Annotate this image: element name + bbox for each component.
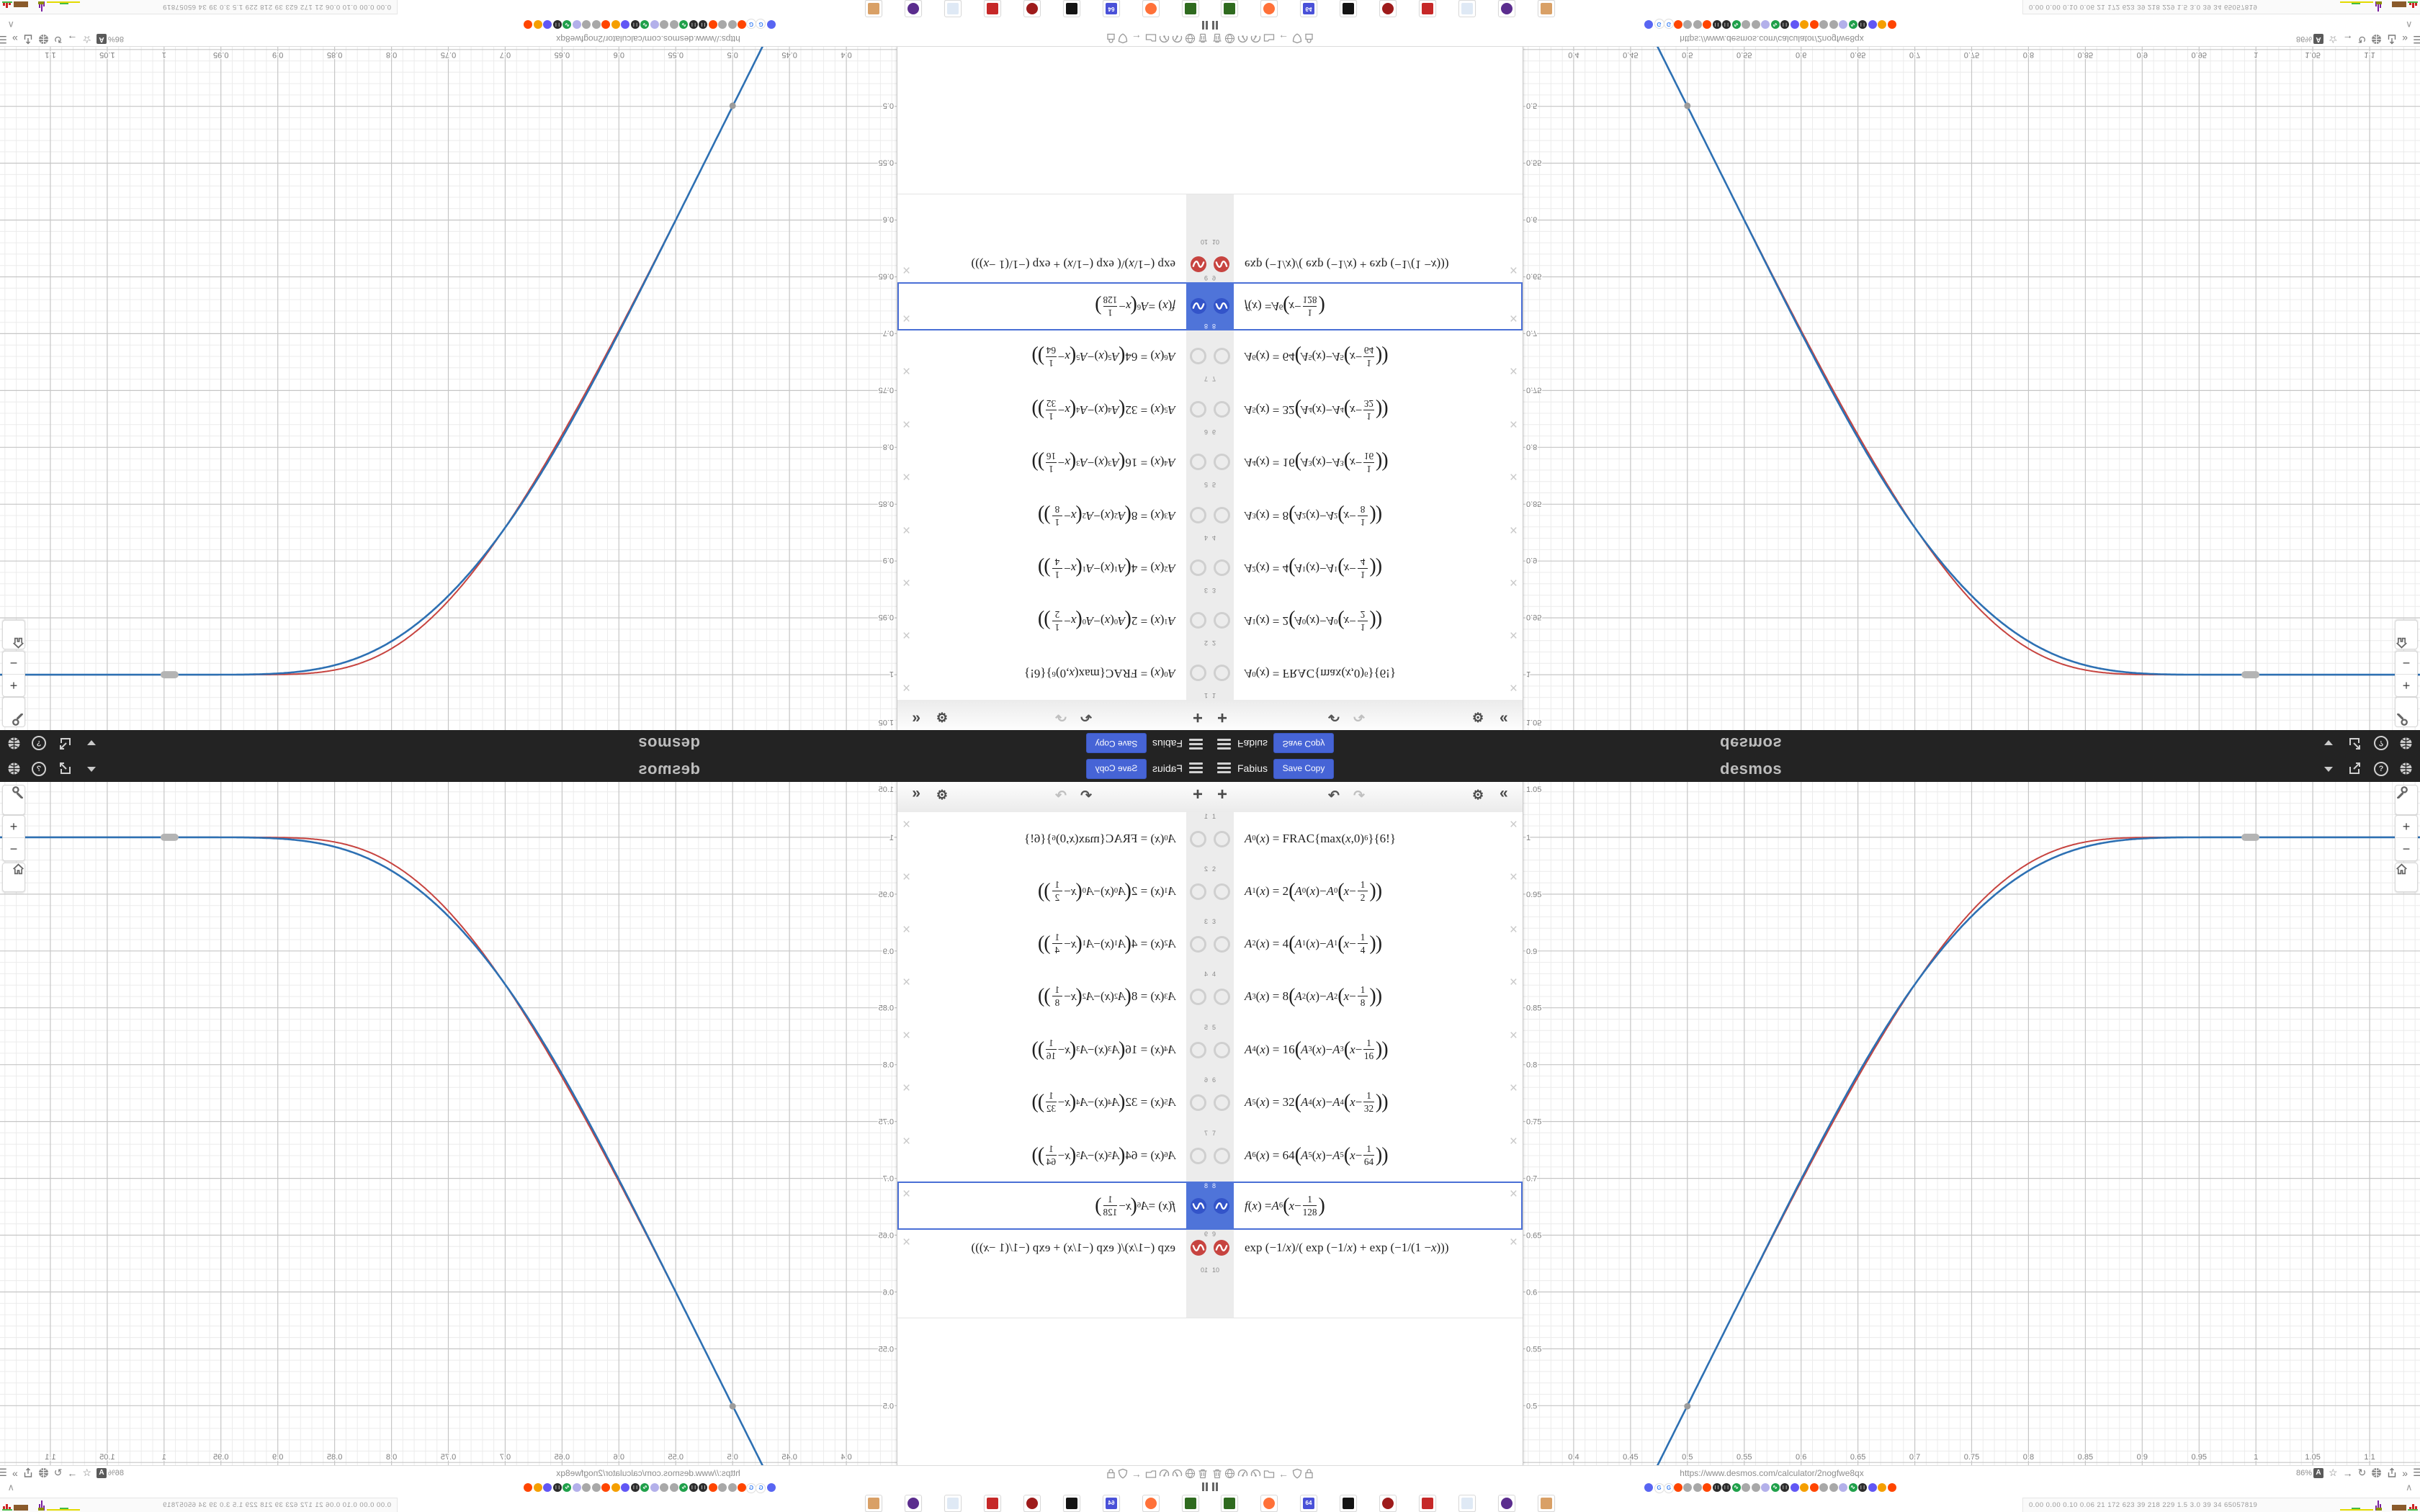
expression-row-10[interactable]: 10: [1210, 1266, 1523, 1318]
fish-favicon[interactable]: [728, 20, 737, 29]
delete-row-icon[interactable]: ×: [902, 1081, 910, 1095]
redgear2-app-icon[interactable]: [984, 1495, 1001, 1512]
expression-row-10[interactable]: 10: [1210, 194, 1523, 246]
globe-icon[interactable]: [1224, 1468, 1235, 1479]
expression-row-9[interactable]: 9exp (−1/x)/( exp (−1/x) + exp (−1/(1 − …: [897, 246, 1210, 282]
save-copy-button[interactable]: Save Copy: [1273, 759, 1334, 779]
trash-favicon[interactable]: ❘❘: [631, 20, 640, 29]
status-url[interactable]: https://www.desmos.com/calculator/2nogfw…: [1556, 1468, 1988, 1478]
expression-formula[interactable]: [1234, 1266, 1507, 1318]
graph-canvas[interactable]: 0.40.450.50.550.60.650.70.750.80.850.90.…: [0, 782, 897, 1465]
discord-favicon[interactable]: [1644, 1483, 1653, 1492]
forward-icon[interactable]: →: [67, 1467, 77, 1479]
menu-icon[interactable]: ☰: [2413, 1467, 2420, 1479]
hidden-toggle-icon[interactable]: [1214, 831, 1230, 847]
delete-row-icon[interactable]: ×: [1510, 1081, 1518, 1095]
globe-icon[interactable]: [7, 737, 21, 750]
translate-icon[interactable]: A: [2313, 1468, 2323, 1478]
expression-row-1[interactable]: 1A0(x) = FRAC{max(x,0)6}{6!}×: [1210, 647, 1523, 700]
fish-favicon[interactable]: [583, 20, 591, 29]
chevron-up-icon[interactable]: ∧: [7, 19, 14, 30]
graph-paper[interactable]: + − 0.40.450.50.550.60.650.70.750.80.850…: [0, 47, 897, 730]
redgear2-app-icon[interactable]: [1419, 1495, 1436, 1512]
reddit-favicon[interactable]: [1810, 20, 1819, 29]
delete-row-icon[interactable]: ×: [902, 1029, 910, 1043]
redgear2-app-icon[interactable]: [1419, 0, 1436, 17]
hidden-toggle-icon[interactable]: [1190, 613, 1206, 629]
gauge-icon[interactable]: [1237, 33, 1248, 44]
gauge-icon[interactable]: [1250, 1468, 1261, 1479]
home-viewport-button[interactable]: [2395, 620, 2418, 649]
expression-row-3[interactable]: 3A2(x) = 4(A1(x)−A1(x − 14))×: [1210, 541, 1523, 595]
reddit-favicon[interactable]: [1674, 20, 1682, 29]
curve-visible-icon[interactable]: [1191, 1198, 1206, 1214]
expression-formula[interactable]: exp (−1/x)/( exp (−1/x) + exp (−1/(1 − x…: [913, 246, 1186, 282]
palette-app-icon[interactable]: [865, 1495, 882, 1512]
delete-row-icon[interactable]: ×: [902, 680, 910, 694]
expression-formula[interactable]: A0(x) = FRAC{max(x,0)6}{6!}: [1234, 812, 1507, 865]
wolf-app-icon[interactable]: [1340, 0, 1357, 17]
terminal-app-icon[interactable]: [1182, 1495, 1199, 1512]
trash-favicon[interactable]: ❘❘: [689, 1483, 698, 1492]
redgear-app-icon[interactable]: [1023, 1495, 1041, 1512]
expression-row-5[interactable]: 5A4(x) = 16(A3(x)−A3(x − 116))×: [1210, 436, 1523, 489]
delete-row-icon[interactable]: ×: [902, 1135, 910, 1148]
sphere-favicon[interactable]: [573, 1483, 581, 1492]
trash-icon[interactable]: [1198, 1468, 1208, 1479]
expression-formula[interactable]: A6(x) = 64(A5(x)−A5(x − 164)): [913, 1129, 1186, 1182]
expression-formula[interactable]: exp (−1/x)/( exp (−1/x) + exp (−1/(1 − x…: [913, 1230, 1186, 1266]
trash-favicon[interactable]: ❘❘: [1722, 1483, 1731, 1492]
desmos-favicon[interactable]: ∿: [1849, 1483, 1857, 1492]
google-favicon[interactable]: G: [746, 19, 756, 29]
hidden-toggle-icon[interactable]: [1214, 883, 1230, 900]
expression-formula[interactable]: [913, 194, 1186, 246]
redgear-app-icon[interactable]: [1379, 0, 1397, 17]
chat-favicon[interactable]: [1791, 20, 1799, 29]
trash-favicon[interactable]: ❘❘: [553, 1483, 562, 1492]
delete-row-icon[interactable]: ×: [902, 575, 910, 589]
graph-settings-wrench-button[interactable]: [2395, 785, 2418, 815]
sphere-favicon[interactable]: [573, 20, 581, 29]
bookmark-star-icon[interactable]: ☆: [2329, 33, 2338, 45]
chevron-up-icon[interactable]: ∧: [2406, 19, 2413, 30]
google-favicon[interactable]: G: [746, 1483, 756, 1493]
curve-visible-icon[interactable]: [1191, 256, 1206, 272]
lock-icon[interactable]: [1304, 1468, 1314, 1479]
hidden-toggle-icon[interactable]: [1214, 401, 1230, 418]
reddit-favicon[interactable]: [1703, 1483, 1711, 1492]
firefox-app-icon[interactable]: [1142, 1495, 1160, 1512]
expression-row-3[interactable]: 3A2(x) = 4(A1(x)−A1(x − 14))×: [897, 917, 1210, 971]
trash-favicon[interactable]: ❘❘: [1713, 1483, 1721, 1492]
expression-formula[interactable]: A1(x) = 2(A0(x)−A0(x − 12)): [913, 595, 1186, 647]
sun-favicon[interactable]: [1800, 20, 1809, 29]
owl-app-icon[interactable]: [905, 1495, 922, 1512]
help-icon[interactable]: ?: [2374, 736, 2388, 750]
menu-icon[interactable]: ☰: [2413, 33, 2420, 45]
expression-row-9[interactable]: 9exp (−1/x)/( exp (−1/x) + exp (−1/(1 − …: [897, 1230, 1210, 1266]
forward-icon[interactable]: →: [2343, 34, 2353, 45]
save-copy-button[interactable]: Save Copy: [1273, 733, 1334, 753]
reload-icon[interactable]: ↻: [54, 33, 63, 45]
reddit-favicon[interactable]: [602, 1483, 611, 1492]
trash-favicon[interactable]: ❘❘: [689, 20, 698, 29]
delete-row-icon[interactable]: ×: [902, 263, 910, 276]
menu-hamburger-icon[interactable]: [1217, 738, 1231, 750]
delete-row-icon[interactable]: ×: [902, 311, 910, 325]
help-icon[interactable]: ?: [2374, 762, 2388, 776]
expression-formula[interactable]: f (x) = A6(x − 1128): [1234, 1182, 1507, 1230]
fish-favicon[interactable]: [1742, 1483, 1750, 1492]
zoom-level[interactable]: 86%: [108, 1469, 124, 1477]
reddit-favicon[interactable]: [602, 20, 611, 29]
graph-settings-wrench-button[interactable]: [2395, 697, 2418, 727]
gauge-icon[interactable]: [1159, 33, 1170, 44]
owl-app-icon[interactable]: [905, 0, 922, 17]
expression-row-4[interactable]: 4A3(x) = 8(A2(x)−A2(x − 18))×: [1210, 970, 1523, 1024]
caret-down-icon[interactable]: [87, 767, 96, 772]
expression-row-10[interactable]: 10: [897, 194, 1210, 246]
trash-favicon[interactable]: ❘❘: [699, 20, 708, 29]
trash-favicon[interactable]: ❘❘: [1780, 20, 1789, 29]
globe-icon[interactable]: [1185, 33, 1196, 44]
reddit-favicon[interactable]: [709, 20, 717, 29]
save-copy-button[interactable]: Save Copy: [1086, 759, 1147, 779]
forward-icon[interactable]: →: [67, 34, 77, 45]
hidden-toggle-icon[interactable]: [1214, 665, 1230, 682]
discord-favicon[interactable]: [767, 1483, 776, 1492]
delete-row-icon[interactable]: ×: [1510, 680, 1518, 694]
translate-icon[interactable]: A: [2313, 35, 2323, 45]
expression-row-7[interactable]: 7A6(x) = 64(A5(x)−A5(x − 164))×: [897, 1129, 1210, 1182]
hidden-toggle-icon[interactable]: [1214, 507, 1230, 523]
graph-canvas[interactable]: 0.40.450.50.550.60.650.70.750.80.850.90.…: [1523, 782, 2420, 1465]
hidden-toggle-icon[interactable]: [1214, 936, 1230, 953]
hidden-toggle-icon[interactable]: [1190, 348, 1206, 365]
fish-favicon[interactable]: [592, 20, 601, 29]
share-icon[interactable]: [2348, 762, 2362, 775]
google-favicon[interactable]: G: [1654, 1483, 1664, 1493]
expression-row-6[interactable]: 6A5(x) = 32(A4(x)−A4(x − 132))×: [1210, 382, 1523, 436]
gauge-icon[interactable]: [1172, 1468, 1183, 1479]
delete-row-icon[interactable]: ×: [902, 1187, 910, 1201]
delete-row-icon[interactable]: ×: [1510, 1135, 1518, 1148]
hidden-toggle-icon[interactable]: [1214, 560, 1230, 577]
expression-row-4[interactable]: 4A3(x) = 8(A2(x)−A2(x − 18))×: [897, 488, 1210, 542]
delete-row-icon[interactable]: ×: [1510, 364, 1518, 377]
menu-hamburger-icon[interactable]: [1189, 738, 1203, 750]
graph-paper[interactable]: + − 0.40.450.50.550.60.650.70.750.80.850…: [1523, 47, 2420, 730]
expression-formula[interactable]: A3(x) = 8(A2(x)−A2(x − 18)): [913, 489, 1186, 542]
sphere-favicon[interactable]: [1839, 1483, 1847, 1492]
reload-icon[interactable]: ↻: [54, 1467, 63, 1479]
google-favicon[interactable]: G: [1654, 19, 1664, 29]
expression-row-8[interactable]: 8f (x) = A6(x − 1128)×: [897, 1182, 1210, 1230]
terminal-app-icon[interactable]: [1221, 0, 1238, 17]
back-arrow-icon[interactable]: ←: [1277, 33, 1290, 45]
curve-visible-icon[interactable]: [1191, 1240, 1206, 1256]
expression-row-5[interactable]: 5A4(x) = 16(A3(x)−A3(x − 116))×: [897, 436, 1210, 489]
delete-row-icon[interactable]: ×: [1510, 263, 1518, 276]
zoom-out-button[interactable]: −: [2396, 652, 2417, 674]
share-icon[interactable]: [23, 34, 33, 45]
folder-icon[interactable]: [1263, 1469, 1275, 1479]
floppy64-app-icon[interactable]: 64: [1103, 1495, 1120, 1512]
caret-down-icon[interactable]: [2324, 767, 2333, 772]
share-icon[interactable]: [2387, 1467, 2397, 1478]
trash-favicon[interactable]: ❘❘: [553, 20, 562, 29]
share-icon[interactable]: [58, 737, 72, 750]
expression-row-8[interactable]: 8f (x) = A6(x − 1128)×: [1210, 282, 1523, 330]
notes-app-icon[interactable]: [944, 1495, 962, 1512]
folder-icon[interactable]: [1263, 34, 1275, 44]
curve-visible-icon[interactable]: [1214, 256, 1229, 272]
caret-down-icon[interactable]: [2324, 740, 2333, 745]
expression-row-2[interactable]: 2A1(x) = 2(A0(x)−A0(x − 12))×: [897, 865, 1210, 918]
desmos-favicon[interactable]: ∿: [563, 1483, 572, 1492]
globe-icon[interactable]: [7, 762, 21, 775]
expression-formula[interactable]: A5(x) = 32(A4(x)−A4(x − 132)): [1234, 1076, 1507, 1129]
delete-row-icon[interactable]: ×: [1510, 311, 1518, 325]
palette-app-icon[interactable]: [865, 0, 882, 17]
sun-favicon[interactable]: [1800, 1483, 1809, 1492]
overflow-chevrons-icon[interactable]: »: [2402, 1467, 2408, 1479]
expression-formula[interactable]: exp (−1/x)/( exp (−1/x) + exp (−1/(1 − x…: [1234, 246, 1507, 282]
overflow-chevrons-icon[interactable]: »: [2402, 34, 2408, 45]
chat-favicon[interactable]: [1868, 1483, 1877, 1492]
expression-row-1[interactable]: 1A0(x) = FRAC{max(x,0)6}{6!}×: [897, 647, 1210, 700]
zoom-out-button[interactable]: −: [2396, 838, 2417, 860]
expression-formula[interactable]: A6(x) = 64(A5(x)−A5(x − 164)): [913, 330, 1186, 383]
reddit-favicon[interactable]: [738, 1483, 747, 1492]
delete-row-icon[interactable]: ×: [1510, 976, 1518, 989]
sun-favicon[interactable]: [534, 20, 542, 29]
reddit-favicon[interactable]: [1888, 1483, 1896, 1492]
wolf-app-icon[interactable]: [1063, 1495, 1080, 1512]
reddit-favicon[interactable]: [1703, 20, 1711, 29]
gauge-icon[interactable]: [1250, 33, 1261, 44]
fish-favicon[interactable]: [1819, 1483, 1828, 1492]
fish-favicon[interactable]: [728, 1483, 737, 1492]
fish-favicon[interactable]: [719, 1483, 727, 1492]
lock-icon[interactable]: [1106, 33, 1116, 44]
redgear-app-icon[interactable]: [1379, 1495, 1397, 1512]
terminal-app-icon[interactable]: [1221, 1495, 1238, 1512]
globe-icon[interactable]: [1185, 1468, 1196, 1479]
redgear2-app-icon[interactable]: [984, 0, 1001, 17]
zoom-in-button[interactable]: +: [3, 674, 24, 696]
expression-formula[interactable]: A2(x) = 4(A1(x)−A1(x − 14)): [913, 542, 1186, 595]
expression-formula[interactable]: A2(x) = 4(A1(x)−A1(x − 14)): [1234, 917, 1507, 970]
discord-favicon[interactable]: [1644, 20, 1653, 29]
graph-paper[interactable]: + − 0.40.450.50.550.60.650.70.750.80.850…: [1523, 782, 2420, 1465]
home-viewport-button[interactable]: [2, 863, 25, 892]
trash-favicon[interactable]: ❘❘: [699, 1483, 708, 1492]
sphere-favicon[interactable]: [650, 20, 659, 29]
expression-row-6[interactable]: 6A5(x) = 32(A4(x)−A4(x − 132))×: [897, 382, 1210, 436]
delete-row-icon[interactable]: ×: [902, 523, 910, 536]
floppy64-app-icon[interactable]: 64: [1300, 1495, 1317, 1512]
curve-visible-icon[interactable]: [1214, 299, 1229, 315]
globe-icon[interactable]: [2399, 762, 2413, 775]
reddit-favicon[interactable]: [524, 1483, 533, 1492]
fish-favicon[interactable]: [1829, 20, 1838, 29]
notes-app-icon[interactable]: [1458, 0, 1476, 17]
expression-formula[interactable]: f (x) = A6(x − 1128): [913, 282, 1186, 330]
expression-row-5[interactable]: 5A4(x) = 16(A3(x)−A3(x − 116))×: [897, 1023, 1210, 1076]
hidden-toggle-icon[interactable]: [1190, 936, 1206, 953]
graph-settings-wrench-button[interactable]: [2, 785, 25, 815]
expression-formula[interactable]: f (x) = A6(x − 1128): [913, 1182, 1186, 1230]
globe-icon[interactable]: [2371, 34, 2382, 45]
hidden-toggle-icon[interactable]: [1190, 665, 1206, 682]
desmos-favicon[interactable]: ∿: [1849, 20, 1857, 29]
zoom-level[interactable]: 86%: [108, 35, 124, 43]
expression-formula[interactable]: A3(x) = 8(A2(x)−A2(x − 18)): [913, 970, 1186, 1023]
caret-down-icon[interactable]: [87, 740, 96, 745]
menu-icon[interactable]: ☰: [0, 33, 7, 45]
palette-app-icon[interactable]: [1538, 1495, 1555, 1512]
redgear-app-icon[interactable]: [1023, 0, 1041, 17]
gauge-icon[interactable]: [1159, 1468, 1170, 1479]
hidden-toggle-icon[interactable]: [1214, 1148, 1230, 1164]
zoom-in-button[interactable]: +: [2396, 816, 2417, 838]
floppy64-app-icon[interactable]: 64: [1300, 0, 1317, 17]
expression-row-6[interactable]: 6A5(x) = 32(A4(x)−A4(x − 132))×: [1210, 1076, 1523, 1130]
chat-favicon[interactable]: [544, 1483, 552, 1492]
hidden-toggle-icon[interactable]: [1190, 401, 1206, 418]
delete-row-icon[interactable]: ×: [1510, 469, 1518, 483]
chat-favicon[interactable]: [1868, 20, 1877, 29]
google-favicon[interactable]: G: [1664, 19, 1674, 29]
expression-row-8[interactable]: 8f (x) = A6(x − 1128)×: [1210, 1182, 1523, 1230]
hidden-toggle-icon[interactable]: [1190, 454, 1206, 471]
menu-icon[interactable]: ☰: [0, 1467, 7, 1479]
delete-row-icon[interactable]: ×: [902, 818, 910, 832]
fish-favicon[interactable]: [1829, 1483, 1838, 1492]
back-arrow-icon[interactable]: ←: [1130, 33, 1143, 45]
expression-row-2[interactable]: 2A1(x) = 2(A0(x)−A0(x − 12))×: [897, 594, 1210, 647]
overflow-chevrons-icon[interactable]: »: [12, 1467, 18, 1479]
shield-icon[interactable]: [1118, 33, 1128, 44]
zoom-level[interactable]: 86%: [2296, 35, 2312, 43]
gauge-icon[interactable]: [1172, 33, 1183, 44]
delete-row-icon[interactable]: ×: [902, 364, 910, 377]
chevron-up-icon[interactable]: ∧: [2406, 1482, 2413, 1493]
fish-favicon[interactable]: [719, 20, 727, 29]
shield-icon[interactable]: [1118, 1468, 1128, 1479]
google-favicon[interactable]: G: [756, 1483, 766, 1493]
sun-favicon[interactable]: [611, 20, 620, 29]
fish-favicon[interactable]: [1693, 20, 1702, 29]
expression-formula[interactable]: A4(x) = 16(A3(x)−A3(x − 116)): [1234, 1023, 1507, 1076]
expression-formula[interactable]: exp (−1/x)/( exp (−1/x) + exp (−1/(1 − x…: [1234, 1230, 1507, 1266]
status-url[interactable]: https://www.desmos.com/calculator/2nogfw…: [432, 34, 864, 44]
expression-formula[interactable]: A5(x) = 32(A4(x)−A4(x − 132)): [913, 383, 1186, 436]
hidden-toggle-icon[interactable]: [1214, 613, 1230, 629]
hidden-toggle-icon[interactable]: [1214, 989, 1230, 1005]
notes-app-icon[interactable]: [944, 0, 962, 17]
fish-favicon[interactable]: [660, 1483, 669, 1492]
firefox-app-icon[interactable]: [1260, 1495, 1278, 1512]
expression-formula[interactable]: A1(x) = 2(A0(x)−A0(x − 12)): [1234, 865, 1507, 917]
terminal-app-icon[interactable]: [1182, 0, 1199, 17]
trash-favicon[interactable]: ❘❘: [1713, 20, 1721, 29]
share-icon[interactable]: [23, 1467, 33, 1478]
bookmark-star-icon[interactable]: ☆: [2329, 1467, 2338, 1479]
back-arrow-icon[interactable]: ←: [1277, 1468, 1290, 1480]
chat-favicon[interactable]: [622, 20, 630, 29]
expression-row-7[interactable]: 7A6(x) = 64(A5(x)−A5(x − 164))×: [1210, 330, 1523, 383]
hidden-toggle-icon[interactable]: [1190, 883, 1206, 900]
owl-app-icon[interactable]: [1498, 1495, 1515, 1512]
graph-paper[interactable]: + − 0.40.450.50.550.60.650.70.750.80.850…: [0, 782, 897, 1465]
hidden-toggle-icon[interactable]: [1214, 454, 1230, 471]
menu-hamburger-icon[interactable]: [1189, 762, 1203, 774]
save-copy-button[interactable]: Save Copy: [1086, 733, 1147, 753]
hidden-toggle-icon[interactable]: [1190, 1094, 1206, 1111]
trash-favicon[interactable]: ❘❘: [1858, 1483, 1867, 1492]
expression-row-1[interactable]: 1A0(x) = FRAC{max(x,0)6}{6!}×: [1210, 812, 1523, 865]
expression-row-2[interactable]: 2A1(x) = 2(A0(x)−A0(x − 12))×: [1210, 594, 1523, 647]
desmos-favicon[interactable]: ∿: [1732, 20, 1741, 29]
home-viewport-button[interactable]: [2395, 863, 2418, 892]
wolf-app-icon[interactable]: [1340, 1495, 1357, 1512]
delete-row-icon[interactable]: ×: [1510, 417, 1518, 431]
owl-app-icon[interactable]: [1498, 0, 1515, 17]
expression-formula[interactable]: f (x) = A6(x − 1128): [1234, 282, 1507, 330]
trash-icon[interactable]: [1198, 33, 1208, 44]
share-icon[interactable]: [2348, 737, 2362, 750]
wolf-app-icon[interactable]: [1063, 0, 1080, 17]
delete-row-icon[interactable]: ×: [1510, 1236, 1518, 1249]
reddit-favicon[interactable]: [1888, 20, 1896, 29]
help-icon[interactable]: ?: [32, 736, 46, 750]
expression-formula[interactable]: A3(x) = 8(A2(x)−A2(x − 18)): [1234, 489, 1507, 542]
expression-row-10[interactable]: 10: [897, 1266, 1210, 1318]
chat-favicon[interactable]: [1791, 1483, 1799, 1492]
expression-formula[interactable]: [913, 1266, 1186, 1318]
sphere-favicon[interactable]: [1839, 20, 1847, 29]
lock-icon[interactable]: [1106, 1468, 1116, 1479]
expression-formula[interactable]: A2(x) = 4(A1(x)−A1(x − 14)): [1234, 542, 1507, 595]
sun-favicon[interactable]: [1878, 1483, 1886, 1492]
expression-formula[interactable]: A3(x) = 8(A2(x)−A2(x − 18)): [1234, 970, 1507, 1023]
chat-favicon[interactable]: [622, 1483, 630, 1492]
trash-favicon[interactable]: ❘❘: [1858, 20, 1867, 29]
expression-formula[interactable]: A4(x) = 16(A3(x)−A3(x − 116)): [913, 436, 1186, 489]
translate-icon[interactable]: A: [97, 1468, 107, 1478]
fish-favicon[interactable]: [660, 20, 669, 29]
reddit-favicon[interactable]: [738, 20, 747, 29]
delete-row-icon[interactable]: ×: [1510, 1187, 1518, 1201]
back-arrow-icon[interactable]: ←: [1130, 1468, 1143, 1480]
desmos-favicon[interactable]: ∿: [641, 1483, 650, 1492]
expression-row-4[interactable]: 4A3(x) = 8(A2(x)−A2(x − 18))×: [1210, 488, 1523, 542]
hidden-toggle-icon[interactable]: [1190, 1148, 1206, 1164]
forward-icon[interactable]: →: [2343, 1467, 2353, 1479]
delete-row-icon[interactable]: ×: [902, 417, 910, 431]
trash-favicon[interactable]: ❘❘: [631, 1483, 640, 1492]
expression-formula[interactable]: A6(x) = 64(A5(x)−A5(x − 164)): [1234, 1129, 1507, 1182]
expression-formula[interactable]: A6(x) = 64(A5(x)−A5(x − 164)): [1234, 330, 1507, 383]
trash-icon[interactable]: [1212, 33, 1222, 44]
reddit-favicon[interactable]: [1810, 1483, 1819, 1492]
fish-favicon[interactable]: [1742, 20, 1750, 29]
zoom-out-button[interactable]: −: [3, 652, 24, 674]
fish-favicon[interactable]: [1683, 1483, 1692, 1492]
